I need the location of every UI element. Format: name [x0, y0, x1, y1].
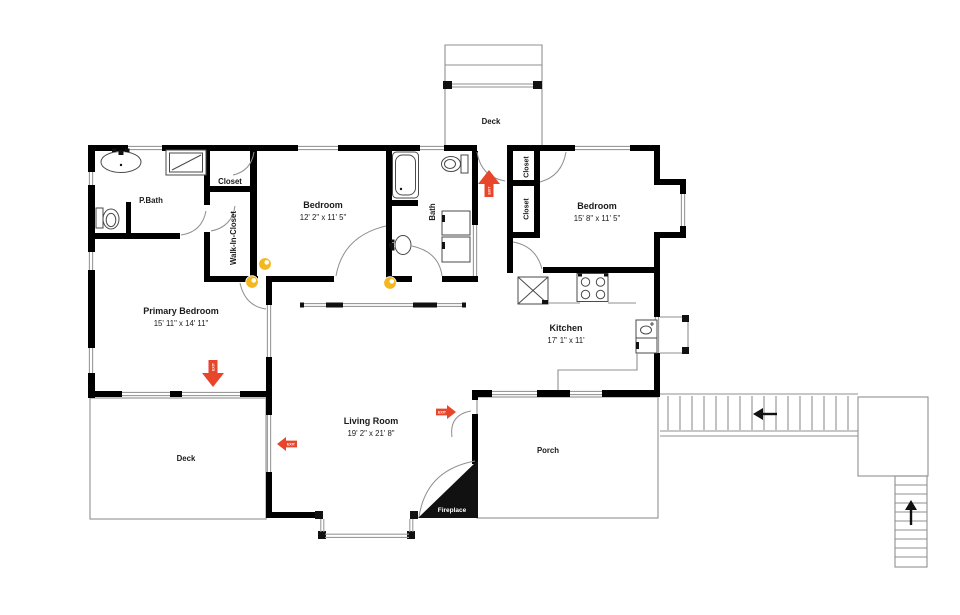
washer-dryer [442, 211, 470, 262]
walk-in-closet-label: Walk-In-Closet [229, 211, 238, 265]
living-room-label: Living Room [344, 416, 399, 426]
svg-text:EXIT: EXIT [438, 411, 447, 415]
porch-label: Porch [537, 446, 559, 455]
svg-text:EXIT: EXIT [488, 186, 492, 195]
closet-top-left-label: Closet [218, 177, 242, 186]
deck-bottom-label: Deck [177, 454, 196, 463]
closet-right-2-label: Closet [524, 198, 531, 220]
kitchen-prep-sink [518, 277, 548, 304]
fireplace-label: Fireplace [438, 507, 467, 514]
closet-right-1-label: Closet [524, 156, 531, 178]
bedroom-right-dims: 15' 8" x 11' 5" [574, 214, 621, 223]
svg-text:EXIT: EXIT [287, 443, 296, 447]
bedroom-right-label: Bedroom [577, 201, 617, 211]
bath-label: Bath [428, 203, 437, 221]
photo-marker-1[interactable] [259, 258, 272, 271]
pbath-label: P.Bath [139, 196, 163, 205]
pbath-toilet [96, 208, 119, 229]
bath-tub [393, 152, 419, 198]
kitchen-stove [577, 274, 608, 302]
floor-plan: Fireplace [0, 0, 960, 615]
bath-toilet [442, 155, 469, 173]
pbath-shower [166, 150, 206, 175]
photo-marker-2[interactable] [246, 276, 259, 289]
deck-top-label: Deck [482, 117, 501, 126]
primary-bedroom-dims: 15' 11" x 14' 11" [154, 319, 209, 328]
living-room-dims: 19' 2" x 21' 8" [347, 429, 394, 438]
photo-marker-3[interactable] [384, 277, 397, 290]
kitchen-label: Kitchen [549, 323, 582, 333]
bedroom-center-dims: 12' 2" x 11' 5" [300, 213, 347, 222]
primary-bedroom-label: Primary Bedroom [143, 306, 219, 316]
kitchen-sink [636, 320, 657, 353]
kitchen-dims: 17' 1" x 11' [547, 336, 585, 345]
bedroom-center-label: Bedroom [303, 200, 343, 210]
svg-text:EXIT: EXIT [212, 362, 216, 371]
